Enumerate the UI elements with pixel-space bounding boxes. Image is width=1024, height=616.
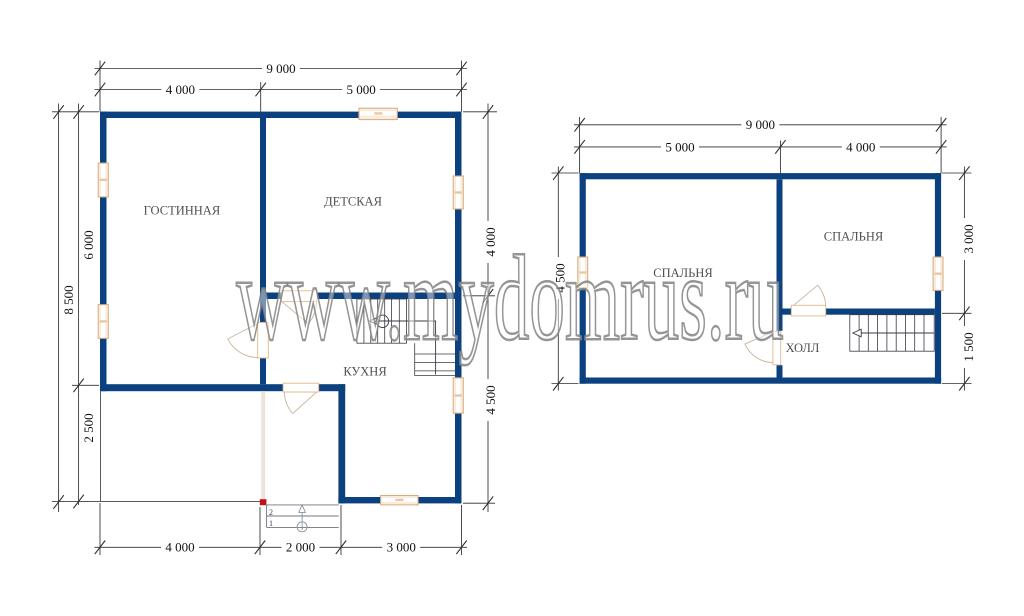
svg-text:1: 1 — [269, 519, 273, 528]
svg-text:3 000: 3 000 — [961, 224, 976, 253]
svg-text:5 000: 5 000 — [346, 82, 375, 97]
svg-text:9 000: 9 000 — [746, 117, 775, 132]
svg-text:8 500: 8 500 — [61, 285, 76, 314]
svg-text:2: 2 — [269, 508, 273, 517]
svg-text:www.mydomrus.ru: www.mydomrus.ru — [236, 230, 784, 366]
svg-text:СПАЛЬНЯ: СПАЛЬНЯ — [824, 230, 883, 244]
svg-text:ГОСТИННАЯ: ГОСТИННАЯ — [144, 204, 221, 218]
svg-text:2 000: 2 000 — [286, 540, 315, 555]
svg-text:4 000: 4 000 — [846, 139, 875, 154]
svg-text:3 000: 3 000 — [387, 540, 416, 555]
svg-text:5 000: 5 000 — [665, 139, 694, 154]
svg-text:1 500: 1 500 — [961, 332, 976, 361]
svg-text:ДЕТСКАЯ: ДЕТСКАЯ — [324, 194, 382, 208]
svg-text:4 000: 4 000 — [165, 540, 194, 555]
svg-text:КУХНЯ: КУХНЯ — [343, 365, 386, 379]
svg-text:2 500: 2 500 — [81, 413, 96, 442]
svg-text:ХОЛЛ: ХОЛЛ — [786, 341, 820, 355]
svg-text:9 000: 9 000 — [266, 61, 295, 76]
svg-text:4 000: 4 000 — [166, 82, 195, 97]
svg-text:6 000: 6 000 — [81, 230, 96, 259]
svg-text:4 500: 4 500 — [483, 385, 498, 414]
